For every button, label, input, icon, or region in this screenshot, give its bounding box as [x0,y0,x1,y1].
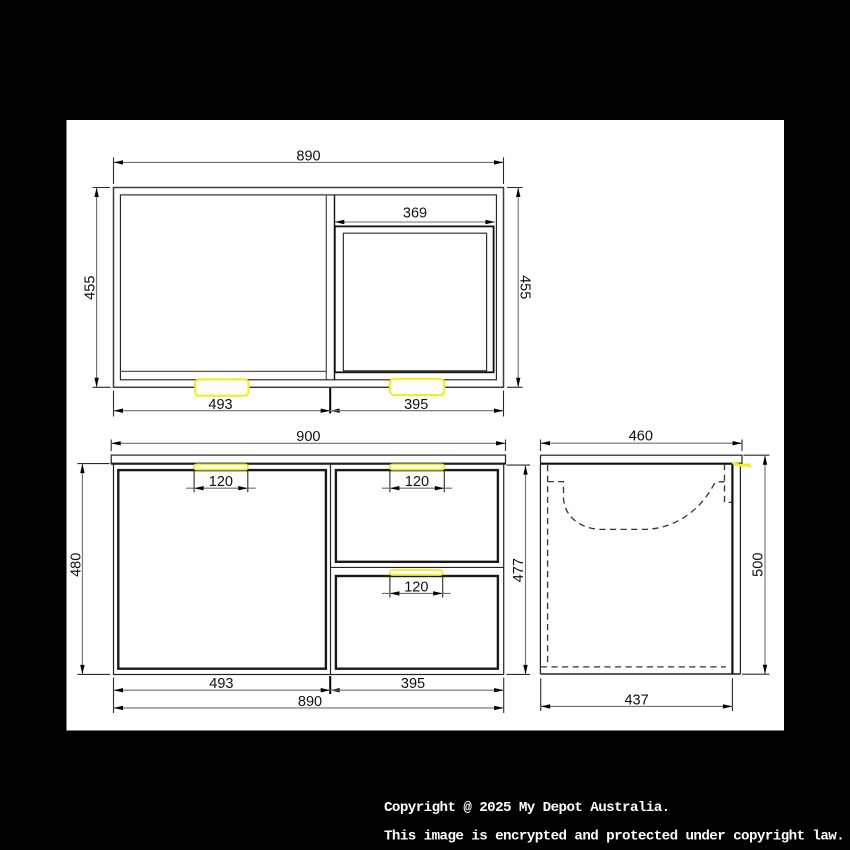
svg-text:480: 480 [68,553,84,577]
svg-text:455: 455 [516,275,532,299]
svg-text:900: 900 [296,429,320,445]
svg-text:500: 500 [751,553,767,577]
svg-text:460: 460 [629,429,653,445]
svg-text:This image is encrypted and pr: This image is encrypted and protected un… [384,828,844,844]
svg-text:455: 455 [82,276,98,300]
svg-text:369: 369 [403,206,427,222]
svg-text:437: 437 [624,692,648,708]
svg-text:120: 120 [404,579,428,595]
svg-text:477: 477 [511,558,527,582]
svg-text:493: 493 [209,676,233,692]
svg-text:395: 395 [404,397,428,413]
svg-text:120: 120 [405,474,429,490]
svg-text:493: 493 [208,397,232,413]
svg-text:Copyright @ 2025 My Depot Aust: Copyright @ 2025 My Depot Australia. [384,800,670,816]
svg-text:890: 890 [298,694,322,710]
svg-text:120: 120 [209,474,233,490]
svg-text:890: 890 [296,149,320,165]
svg-text:395: 395 [401,676,425,692]
